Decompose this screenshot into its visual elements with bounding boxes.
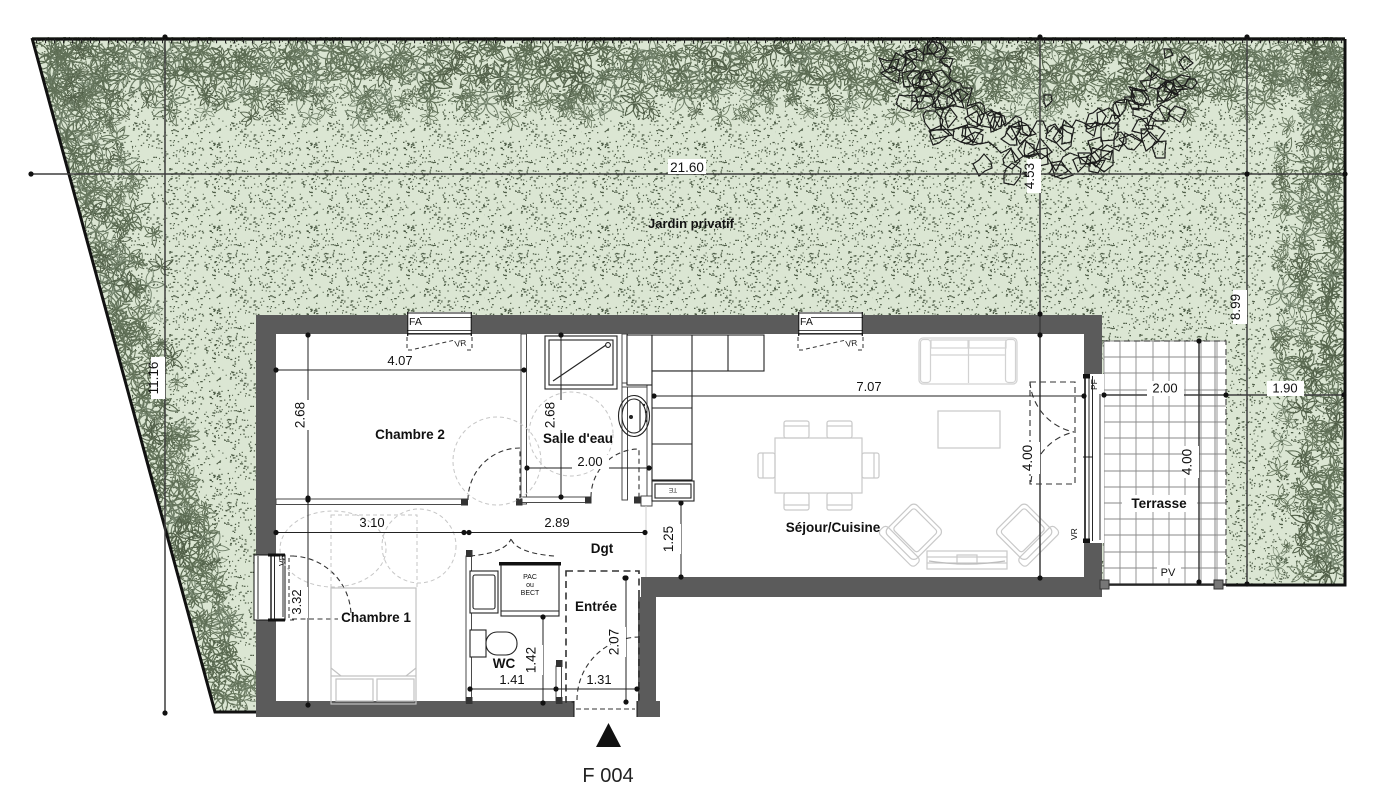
svg-text:11.16: 11.16 [146, 362, 161, 395]
svg-text:VR: VR [845, 337, 858, 349]
svg-text:PV: PV [1161, 567, 1176, 579]
svg-text:VR: VR [277, 554, 287, 566]
svg-text:7.07: 7.07 [856, 379, 881, 394]
svg-text:FA: FA [409, 316, 422, 328]
svg-text:TE: TE [668, 486, 677, 493]
svg-text:2.07: 2.07 [607, 629, 622, 655]
svg-text:F 004: F 004 [582, 765, 633, 787]
svg-text:Salle d'eau: Salle d'eau [543, 431, 613, 446]
svg-text:8.99: 8.99 [1228, 294, 1243, 320]
svg-text:PF: PF [1089, 379, 1099, 390]
svg-text:3.32: 3.32 [289, 589, 304, 614]
svg-text:Terrasse: Terrasse [1131, 496, 1187, 511]
svg-text:1.25: 1.25 [661, 526, 676, 552]
svg-text:21.60: 21.60 [670, 160, 704, 175]
svg-text:3.10: 3.10 [359, 515, 384, 530]
svg-text:2.89: 2.89 [544, 515, 569, 530]
svg-text:FA: FA [800, 316, 813, 328]
svg-text:4.07: 4.07 [387, 353, 412, 368]
svg-text:4.00: 4.00 [1180, 449, 1195, 475]
svg-text:Jardin privatif: Jardin privatif [648, 216, 735, 231]
svg-text:Dgt: Dgt [591, 541, 614, 556]
svg-text:1.42: 1.42 [524, 647, 539, 673]
svg-text:2.68: 2.68 [543, 402, 558, 428]
svg-text:ou: ou [526, 582, 534, 589]
svg-text:Séjour/Cuisine: Séjour/Cuisine [786, 520, 881, 535]
svg-text:2.00: 2.00 [1152, 381, 1177, 396]
svg-text:4.53: 4.53 [1022, 163, 1037, 189]
svg-text:1.90: 1.90 [1272, 381, 1297, 396]
svg-text:Entrée: Entrée [575, 599, 618, 614]
svg-text:1.31: 1.31 [586, 672, 611, 687]
svg-text:Chambre 2: Chambre 2 [375, 427, 445, 442]
svg-text:PAC: PAC [523, 574, 537, 581]
svg-text:BECT: BECT [521, 590, 540, 597]
svg-text:VR: VR [454, 337, 467, 349]
svg-text:1.41: 1.41 [499, 672, 524, 687]
svg-text:WC: WC [493, 656, 516, 671]
svg-text:2.00: 2.00 [577, 454, 602, 469]
svg-text:Chambre 1: Chambre 1 [341, 610, 411, 625]
svg-text:2.68: 2.68 [293, 402, 308, 428]
svg-text:4.00: 4.00 [1020, 445, 1035, 471]
svg-text:VR: VR [1069, 528, 1079, 540]
